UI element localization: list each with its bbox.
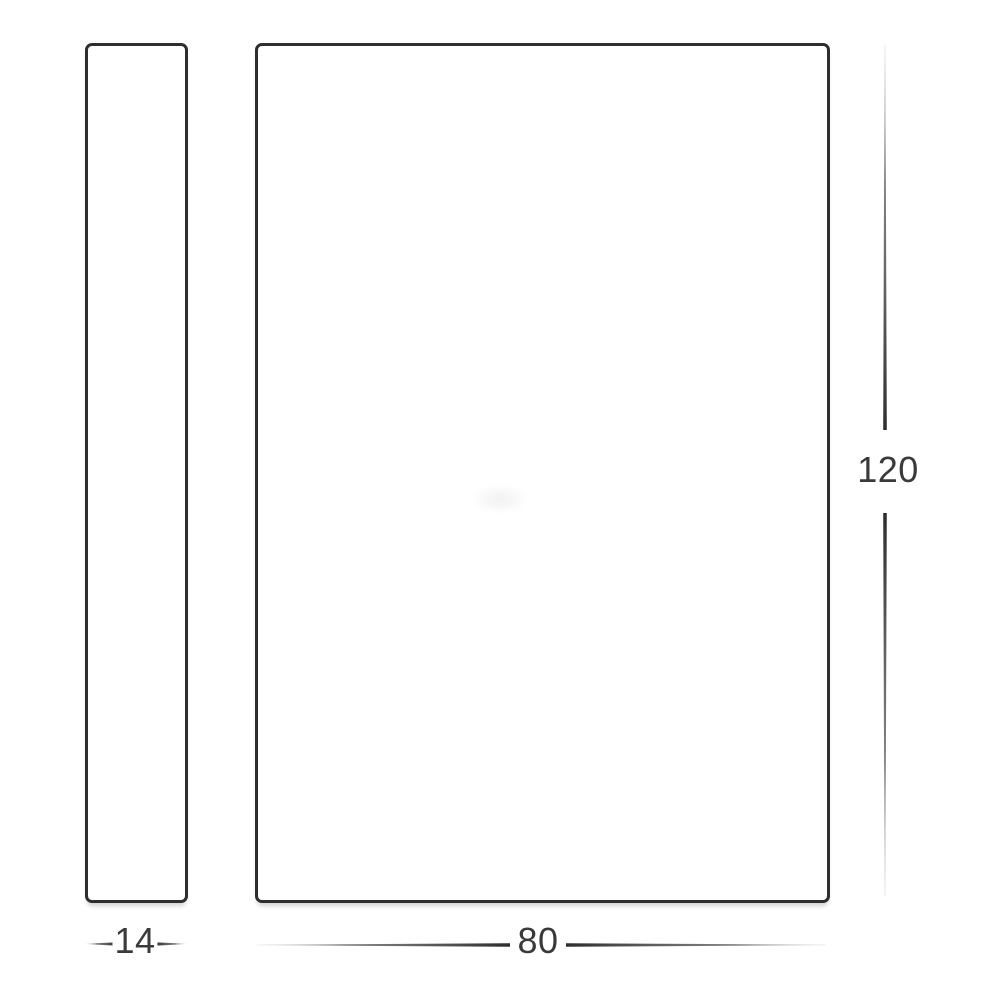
watermark-smudge <box>474 486 526 512</box>
dimension-diagram-canvas: 14 80 120 <box>0 0 1000 1000</box>
dim-line-side-width-right <box>156 942 185 945</box>
dim-line-front-width-left <box>257 943 510 946</box>
dimension-label-side-width: 14 <box>112 923 157 959</box>
side-view-outline <box>85 43 188 903</box>
dim-line-front-height-top <box>883 45 887 430</box>
dim-line-front-width-right <box>566 943 826 946</box>
dim-line-front-height-bottom <box>883 513 887 896</box>
dimension-label-front-height: 120 <box>855 452 921 488</box>
front-view-outline <box>255 43 830 903</box>
dimension-label-front-width: 80 <box>515 923 560 959</box>
